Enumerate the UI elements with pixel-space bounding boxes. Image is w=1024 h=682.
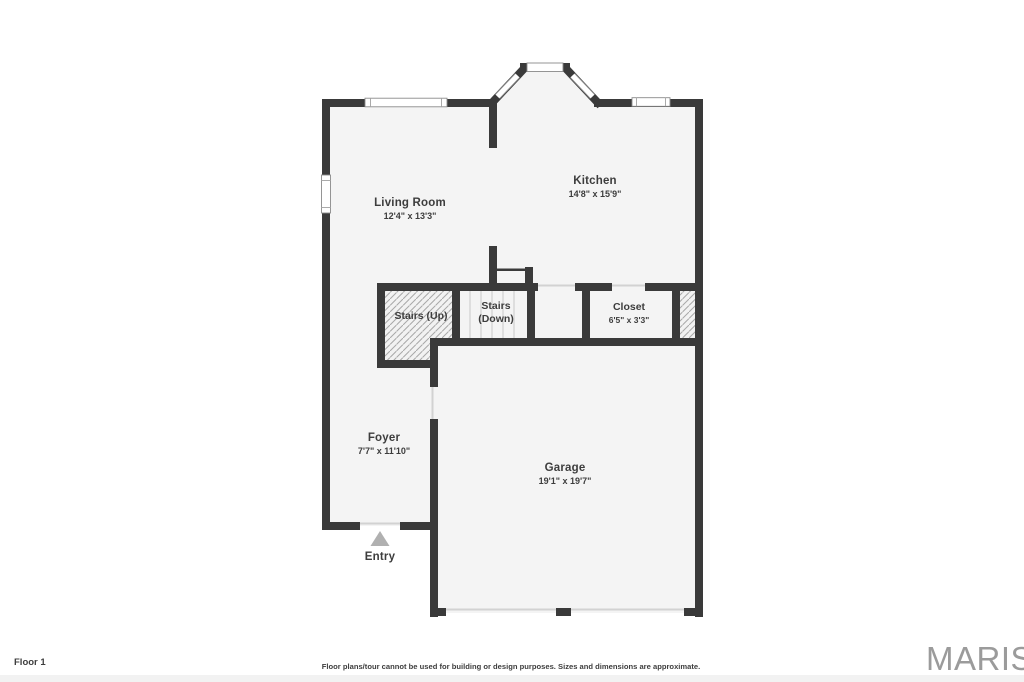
wall-right: [695, 99, 703, 617]
wall-garage-bottom-right-cap: [684, 608, 703, 616]
wall-midband-top-2: [575, 283, 612, 291]
foyer-dimensions: 7'7" x 11'10": [358, 446, 410, 456]
living-room-dimensions: 12'4" x 13'3": [384, 211, 437, 221]
closet-label: Closet: [613, 301, 645, 313]
wall-stairs-up-left: [377, 283, 385, 368]
entry-label: Entry: [365, 551, 395, 563]
garage-label: Garage: [545, 462, 586, 474]
wall-stairs-divider: [452, 283, 460, 342]
floor-number-label: Floor 1: [14, 657, 46, 668]
floor-plan-drawing: [0, 0, 1024, 682]
wall-kitchen-living-divider: [489, 103, 497, 148]
floor-plan-page: Living Room 12'4" x 13'3" Kitchen 14'8" …: [0, 0, 1024, 682]
disclaimer-text: Floor plans/tour cannot be used for buil…: [322, 662, 700, 671]
wall-garage-left-lower: [430, 419, 438, 617]
wall-garage-top: [430, 338, 703, 346]
kitchen-dimensions: 14'8" x 15'9": [569, 189, 622, 199]
wall-garage-bottom-mid-cap: [556, 608, 571, 616]
wall-left: [322, 99, 330, 530]
maris-logo: MARIS: [926, 640, 1024, 678]
foyer-label: Foyer: [368, 432, 400, 444]
window-living-room-top: [365, 98, 447, 107]
wall-stairs-down-right: [527, 283, 535, 342]
wall-stairs-rail: [497, 269, 527, 272]
wall-closet-left: [582, 283, 590, 342]
window-bay-center: [527, 63, 563, 72]
stairs-up-label: Stairs (Up): [394, 310, 447, 322]
footer-strip: [0, 675, 1024, 682]
living-room-label: Living Room: [374, 197, 446, 209]
wall-garage-bottom-left-cap: [430, 608, 446, 616]
garage-dimensions: 19'1" x 19'7": [539, 476, 592, 486]
wall-closet-right: [672, 283, 680, 342]
wall-stairs-up-bottom: [377, 360, 437, 368]
window-kitchen-top: [632, 98, 670, 107]
entry-arrow-icon: [371, 531, 390, 546]
closet-dimensions: 6'5" x 3'3": [609, 315, 649, 325]
closet-side-hatch: [680, 291, 695, 338]
wall-foyer-bottom-left: [322, 522, 360, 530]
kitchen-label: Kitchen: [573, 175, 617, 187]
stairs-down-label: Stairs (Down): [478, 300, 514, 326]
